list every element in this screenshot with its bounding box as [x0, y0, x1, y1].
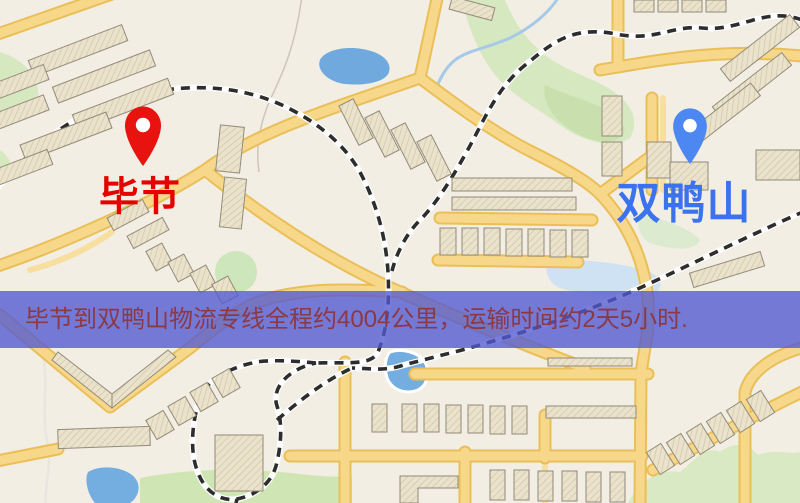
origin-label: 毕节	[94, 177, 186, 217]
route-info-banner: 毕节到双鸭山物流专线全程约4004公里，运输时间约2天5小时.	[0, 291, 800, 348]
origin-pin-icon[interactable]	[123, 104, 163, 167]
destination-pin-icon[interactable]	[671, 106, 709, 165]
map-viewport[interactable]: 毕节 双鸭山 毕节到双鸭山物流专线全程约4004公里，运输时间约2天5小时.	[0, 0, 800, 503]
map-canvas[interactable]	[0, 0, 800, 503]
destination-label: 双鸭山	[612, 182, 756, 226]
